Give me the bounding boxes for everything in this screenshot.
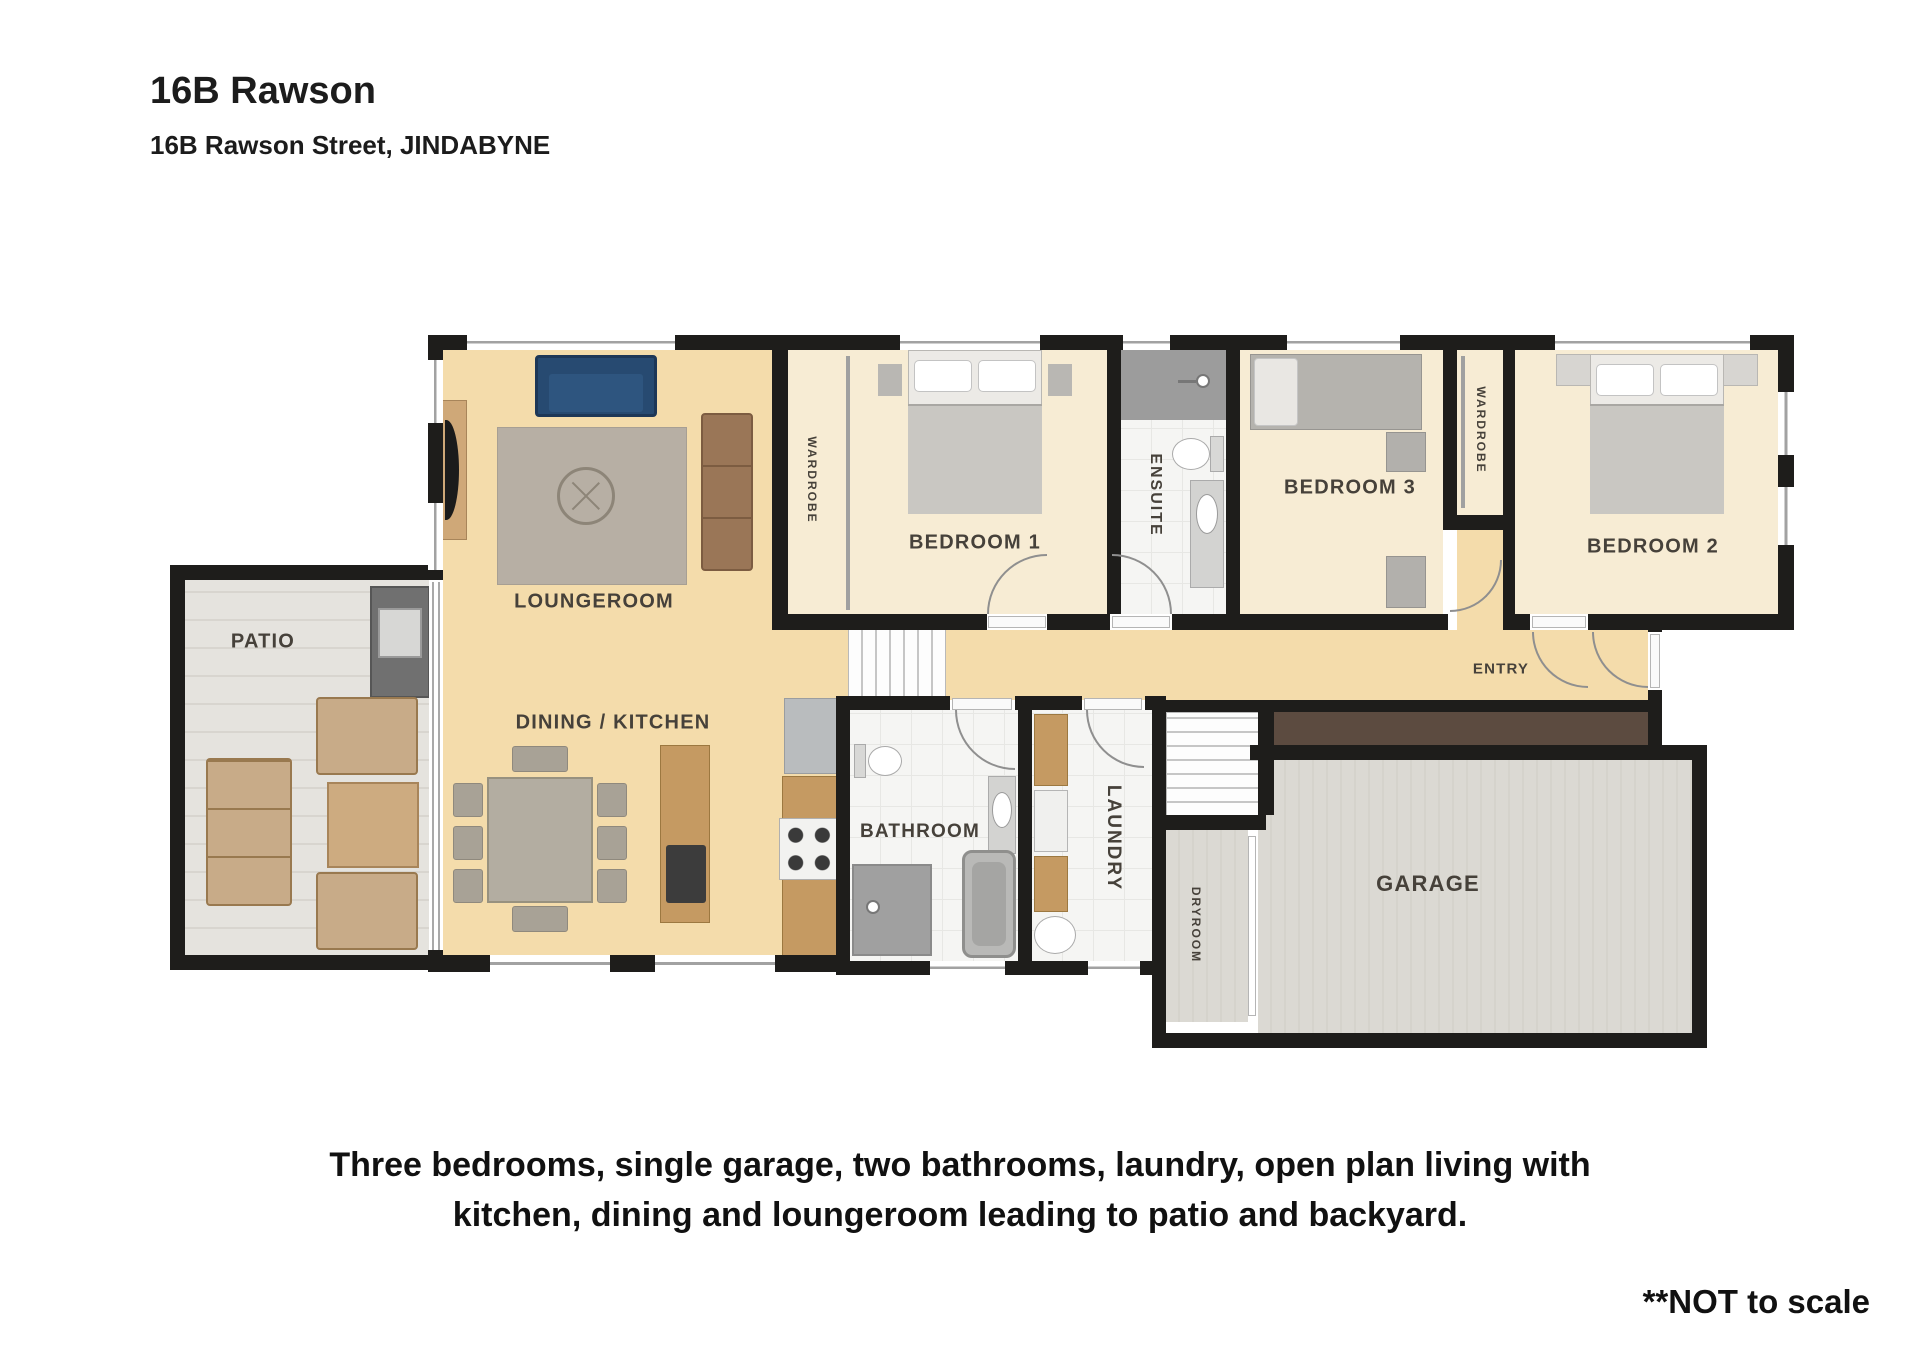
chair-icon bbox=[453, 826, 483, 860]
shower-head-icon bbox=[866, 900, 880, 914]
laundry-bench-icon bbox=[1034, 856, 1068, 912]
room-label-loungeroom: LOUNGEROOM bbox=[514, 591, 674, 614]
wall-segment bbox=[1152, 1033, 1707, 1048]
wall-segment bbox=[1015, 696, 1082, 710]
cabinet-icon bbox=[1386, 556, 1426, 608]
laundry-bench-icon bbox=[1034, 714, 1068, 786]
wall-segment bbox=[1503, 350, 1515, 614]
room-label-dining-kitchen: DINING / KITCHEN bbox=[516, 712, 711, 735]
pillow-icon bbox=[914, 360, 972, 392]
room-label-laundry: LAUNDRY bbox=[1102, 785, 1124, 891]
pillow-icon bbox=[978, 360, 1036, 392]
coffee-table-icon bbox=[327, 782, 419, 868]
fridge-icon bbox=[784, 698, 838, 774]
wall-segment bbox=[1503, 614, 1530, 630]
room-label-bedroom2: BEDROOM 2 bbox=[1587, 536, 1719, 559]
scale-note: **NOT to scale bbox=[1643, 1283, 1870, 1321]
round-table-icon bbox=[557, 467, 615, 525]
wall-segment bbox=[1152, 696, 1166, 1048]
wall-segment bbox=[1692, 745, 1707, 1048]
wall-segment bbox=[836, 696, 850, 975]
room-label-dryroom: DRYROOM bbox=[1189, 887, 1203, 963]
armchair-icon bbox=[316, 872, 418, 950]
sofa-blue-seat-icon bbox=[549, 374, 643, 412]
window bbox=[428, 360, 443, 423]
window bbox=[467, 335, 675, 350]
wall-segment bbox=[1778, 335, 1794, 630]
bbq-grill-icon bbox=[378, 608, 422, 658]
outdoor-sofa-icon bbox=[206, 758, 292, 906]
garage-deck-strip bbox=[1274, 712, 1650, 745]
cooktop-icon bbox=[779, 818, 839, 880]
cabinet-icon bbox=[1386, 432, 1426, 472]
dining-table-icon bbox=[487, 777, 593, 903]
chair-icon bbox=[512, 746, 568, 772]
door-leaf bbox=[952, 698, 1012, 710]
toilet-icon bbox=[1172, 438, 1210, 470]
wall-segment bbox=[170, 565, 443, 580]
stairs-icon bbox=[848, 624, 946, 700]
window bbox=[930, 961, 1005, 975]
pillow-icon bbox=[1660, 364, 1718, 396]
shower-icon bbox=[1121, 350, 1226, 420]
wall-segment bbox=[1018, 710, 1032, 961]
wall-segment bbox=[1047, 614, 1110, 630]
pillow-icon bbox=[1254, 358, 1298, 426]
room-label-bedroom1: BEDROOM 1 bbox=[909, 532, 1041, 555]
chair-icon bbox=[512, 906, 568, 932]
window bbox=[1778, 487, 1794, 545]
bedside-table-icon bbox=[1048, 364, 1072, 396]
window bbox=[490, 955, 610, 972]
island-sink-icon bbox=[666, 845, 706, 903]
wall-segment bbox=[1443, 515, 1503, 530]
wall-segment bbox=[772, 614, 987, 630]
wall-segment bbox=[1648, 614, 1662, 632]
chair-icon bbox=[453, 869, 483, 903]
shower-icon bbox=[852, 864, 932, 956]
chair-icon bbox=[453, 783, 483, 817]
bathtub-inner-icon bbox=[972, 862, 1006, 946]
room-floor-dryroom bbox=[1166, 830, 1248, 1022]
room-label-bedroom3: BEDROOM 3 bbox=[1284, 477, 1416, 500]
room-label-wardrobe1: WARDROBE bbox=[805, 436, 819, 523]
pillow-icon bbox=[1596, 364, 1654, 396]
description-line-2: kitchen, dining and loungeroom leading t… bbox=[0, 1196, 1920, 1235]
toilet-tank-icon bbox=[1210, 436, 1224, 472]
wall-segment bbox=[836, 696, 950, 710]
sink-icon bbox=[1196, 494, 1218, 534]
window bbox=[1123, 335, 1170, 350]
laundry-sink-icon bbox=[1034, 916, 1076, 954]
blanket-icon bbox=[1590, 404, 1724, 514]
wall-segment bbox=[1250, 745, 1707, 760]
sink-icon bbox=[992, 792, 1012, 828]
wall-segment bbox=[772, 350, 788, 614]
door-leaf bbox=[1532, 616, 1586, 628]
sliding-door-icon bbox=[429, 582, 443, 950]
room-label-ensuite: ENSUITE bbox=[1146, 453, 1164, 536]
wardrobe-sliding-door-icon bbox=[1461, 356, 1465, 508]
sofa-brown-icon bbox=[701, 413, 753, 571]
window bbox=[1778, 392, 1794, 455]
chair-icon bbox=[597, 783, 627, 817]
door-leaf bbox=[1112, 616, 1170, 628]
door-leaf bbox=[988, 616, 1046, 628]
shower-head-icon bbox=[1178, 380, 1196, 383]
stairs-icon bbox=[1166, 712, 1260, 816]
wall-segment bbox=[1166, 700, 1662, 712]
door-leaf bbox=[1650, 634, 1660, 688]
wall-segment bbox=[1443, 350, 1457, 515]
wardrobe-sliding-door-icon bbox=[846, 356, 850, 610]
room-label-bathroom: BATHROOM bbox=[860, 821, 980, 843]
window bbox=[655, 955, 775, 972]
wall-segment bbox=[1172, 614, 1448, 630]
description-line-1: Three bedrooms, single garage, two bathr… bbox=[0, 1146, 1920, 1185]
bedside-table-icon bbox=[878, 364, 902, 396]
window bbox=[428, 503, 443, 570]
wall-segment bbox=[1226, 350, 1240, 614]
toilet-icon bbox=[868, 746, 902, 776]
blanket-icon bbox=[908, 404, 1042, 514]
wall-segment bbox=[170, 565, 185, 970]
toilet-tank-icon bbox=[854, 744, 866, 778]
room-label-garage: GARAGE bbox=[1376, 871, 1480, 897]
window bbox=[1287, 335, 1400, 350]
dryroom-glass-door bbox=[1248, 836, 1256, 1016]
armchair-icon bbox=[316, 697, 418, 775]
window bbox=[900, 335, 1040, 350]
room-label-entry: ENTRY bbox=[1473, 661, 1529, 678]
window bbox=[1555, 335, 1750, 350]
wall-segment bbox=[1258, 712, 1274, 815]
door-leaf bbox=[1084, 698, 1142, 710]
wall-segment bbox=[1648, 690, 1662, 745]
wall-segment bbox=[1152, 815, 1266, 830]
chair-icon bbox=[597, 869, 627, 903]
shower-head-icon bbox=[1196, 374, 1210, 388]
wall-segment bbox=[170, 955, 444, 970]
chair-icon bbox=[597, 826, 627, 860]
window bbox=[1088, 961, 1140, 975]
washing-machine-icon bbox=[1034, 790, 1068, 852]
wall-segment bbox=[1588, 614, 1794, 630]
room-label-wardrobe2: WARDROBE bbox=[1474, 386, 1488, 473]
room-label-patio: PATIO bbox=[231, 631, 295, 654]
